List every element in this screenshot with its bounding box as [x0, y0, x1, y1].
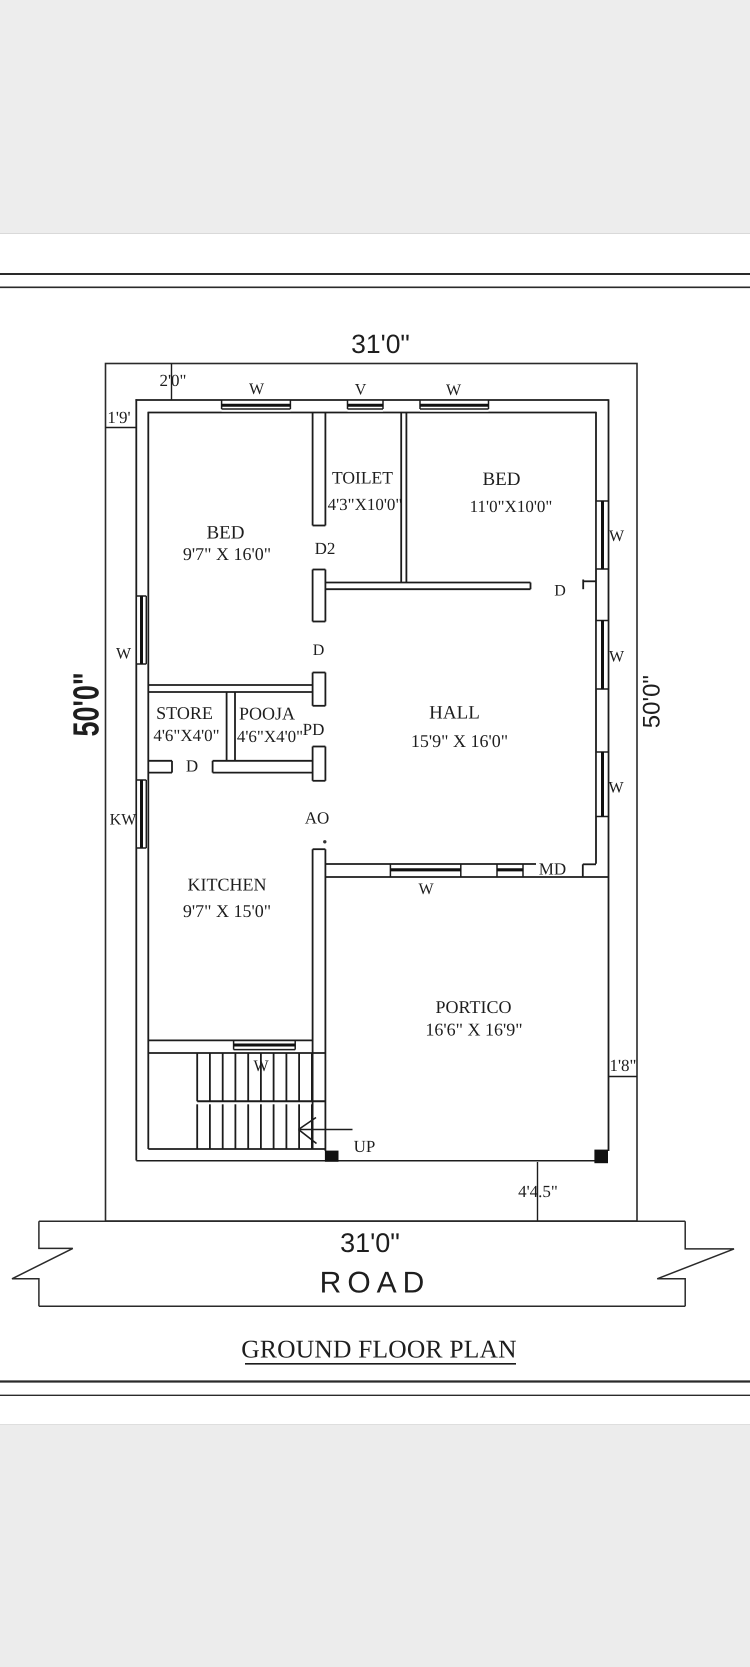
- svg-text:W: W: [253, 1058, 269, 1075]
- svg-text:POOJA: POOJA: [239, 704, 295, 724]
- svg-text:D2: D2: [315, 539, 336, 558]
- svg-text:4'3"X10'0": 4'3"X10'0": [328, 495, 403, 514]
- svg-text:V: V: [355, 382, 367, 399]
- svg-text:50'0": 50'0": [638, 675, 665, 728]
- svg-text:UP: UP: [354, 1137, 376, 1156]
- svg-text:31'0": 31'0": [351, 329, 410, 359]
- svg-text:4'6"X4'0": 4'6"X4'0": [237, 727, 303, 746]
- svg-text:BED: BED: [207, 523, 245, 544]
- svg-text:16'6" X 16'9": 16'6" X 16'9": [425, 1020, 522, 1040]
- svg-text:W: W: [446, 382, 462, 399]
- svg-text:KITCHEN: KITCHEN: [188, 875, 267, 895]
- svg-text:STORE: STORE: [156, 703, 213, 723]
- svg-text:11'0"X10'0": 11'0"X10'0": [470, 497, 553, 516]
- svg-text:ROAD: ROAD: [320, 1267, 431, 1300]
- svg-text:GROUND FLOOR PLAN: GROUND FLOOR PLAN: [241, 1335, 516, 1364]
- svg-text:4'4.5": 4'4.5": [518, 1182, 558, 1201]
- svg-text:15'9" X 16'0": 15'9" X 16'0": [411, 731, 508, 751]
- svg-text:W: W: [116, 646, 132, 663]
- svg-text:PD: PD: [303, 720, 325, 739]
- svg-text:W: W: [608, 780, 624, 797]
- svg-text:D: D: [554, 583, 566, 600]
- svg-text:W: W: [249, 381, 265, 398]
- svg-text:D: D: [313, 642, 325, 659]
- svg-text:W: W: [609, 528, 625, 545]
- svg-text:W: W: [609, 649, 625, 666]
- svg-text:9'7" X 16'0": 9'7" X 16'0": [183, 544, 271, 564]
- svg-text:9'7" X 15'0": 9'7" X 15'0": [183, 901, 271, 921]
- svg-text:2'0": 2'0": [159, 371, 186, 390]
- svg-text:50'0": 50'0": [66, 672, 107, 736]
- svg-text:HALL: HALL: [429, 703, 480, 724]
- svg-text:D: D: [186, 757, 198, 776]
- svg-text:MD: MD: [539, 860, 566, 879]
- svg-text:TOILET: TOILET: [332, 468, 393, 488]
- svg-text:31'0": 31'0": [340, 1228, 400, 1258]
- svg-text:1'8": 1'8": [609, 1056, 636, 1075]
- svg-text:KW: KW: [110, 812, 138, 829]
- svg-text:BED: BED: [483, 469, 521, 490]
- svg-text:AO: AO: [305, 809, 330, 828]
- svg-text:PORTICO: PORTICO: [436, 997, 512, 1017]
- svg-text:W: W: [418, 881, 434, 898]
- svg-text:4'6"X4'0": 4'6"X4'0": [153, 726, 219, 745]
- svg-text:1'9': 1'9': [107, 408, 130, 427]
